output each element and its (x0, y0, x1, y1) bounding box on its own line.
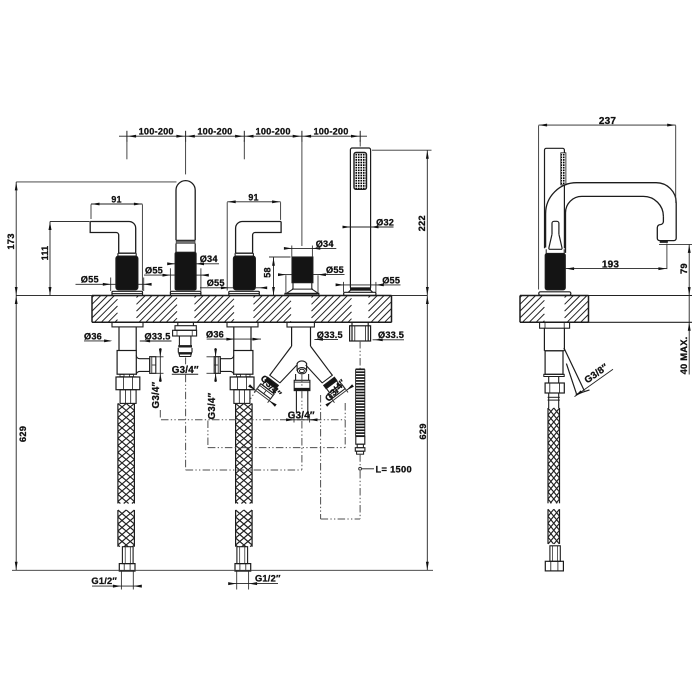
svg-text:Ø34: Ø34 (316, 239, 335, 249)
svg-text:Ø55: Ø55 (382, 275, 400, 285)
svg-text:629: 629 (417, 423, 428, 439)
svg-text:629: 629 (17, 426, 28, 442)
svg-text:Ø32: Ø32 (376, 217, 394, 227)
svg-text:91: 91 (111, 195, 121, 205)
svg-text:100-200: 100-200 (197, 127, 232, 137)
svg-text:40 MAX.: 40 MAX. (678, 337, 689, 375)
svg-text:237: 237 (599, 116, 617, 127)
svg-text:222: 222 (416, 215, 427, 231)
svg-text:Ø36: Ø36 (84, 331, 102, 341)
svg-text:173: 173 (5, 233, 16, 249)
svg-text:111: 111 (40, 246, 50, 261)
svg-text:100-200: 100-200 (313, 127, 348, 137)
svg-text:G3/4″: G3/4″ (151, 381, 162, 408)
svg-text:L= 1500: L= 1500 (376, 464, 412, 474)
svg-text:G3/4″: G3/4″ (207, 392, 218, 419)
svg-text:Ø55: Ø55 (207, 278, 225, 288)
svg-text:193: 193 (602, 260, 620, 271)
svg-text:Ø55: Ø55 (81, 275, 99, 285)
svg-text:Ø33.5: Ø33.5 (145, 331, 171, 341)
svg-text:100-200: 100-200 (139, 127, 174, 137)
svg-text:58: 58 (263, 267, 273, 277)
svg-text:Ø55: Ø55 (326, 265, 344, 275)
svg-text:Ø55: Ø55 (145, 265, 163, 275)
svg-text:79: 79 (678, 263, 689, 274)
svg-text:Ø36: Ø36 (206, 330, 224, 340)
svg-text:Ø33.5: Ø33.5 (378, 330, 404, 340)
svg-text:G1/2″: G1/2″ (91, 576, 117, 586)
svg-text:G1/2″: G1/2″ (255, 574, 281, 584)
svg-text:91: 91 (248, 193, 258, 203)
svg-text:Ø34: Ø34 (200, 254, 219, 264)
svg-text:100-200: 100-200 (256, 127, 291, 137)
svg-text:Ø33.5: Ø33.5 (317, 330, 343, 340)
